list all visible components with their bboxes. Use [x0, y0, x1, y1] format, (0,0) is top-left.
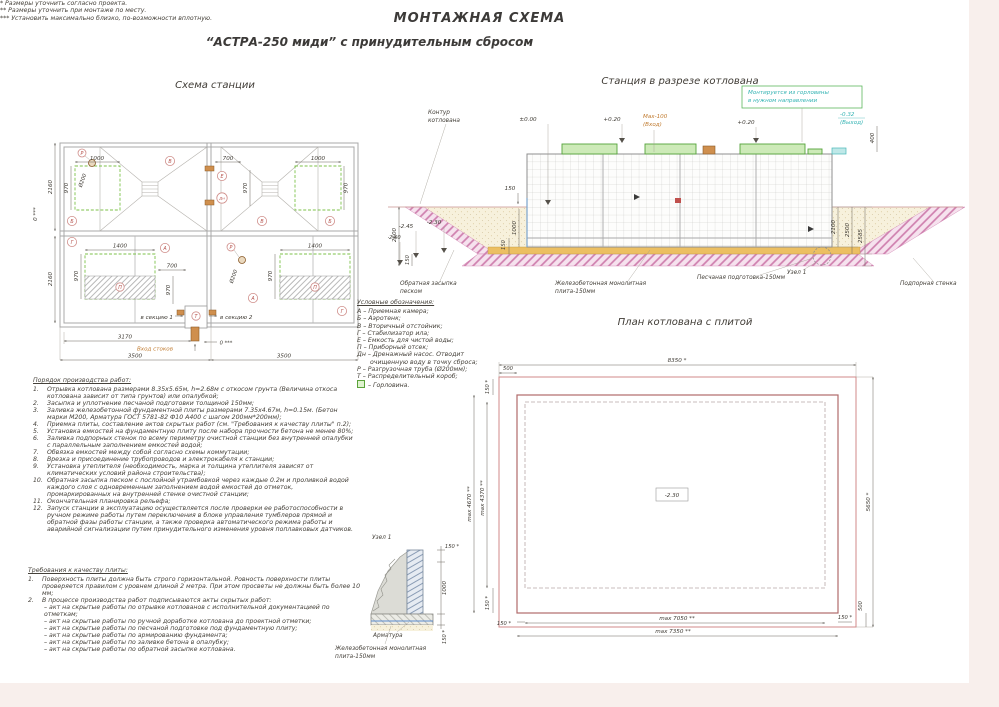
svg-text:-0.32: -0.32 [840, 112, 855, 118]
svg-text:2100: 2100 [831, 219, 837, 234]
to-section2-label: в секцию 2 [220, 315, 253, 321]
svg-text:Г: Г [341, 309, 344, 315]
svg-text:2500: 2500 [845, 222, 851, 237]
svg-text:max 4370 **: max 4370 ** [480, 480, 486, 516]
svg-text:песком: песком [400, 289, 423, 295]
svg-text:Р: Р [230, 245, 233, 251]
retaining-wall-section [407, 550, 423, 614]
page-subtitle: “АСТРА-250 миди” с принудительным сбросо… [0, 35, 739, 49]
pit-outlines [499, 377, 856, 627]
work-order-item: 8.Врезка и присоединение трубопроводов и… [33, 456, 358, 463]
svg-text:970: 970 [74, 270, 80, 281]
svg-text:Max-100: Max-100 [643, 114, 668, 120]
pit-plan-title: План котлована с плитой [560, 317, 810, 328]
svg-text:А: А [162, 246, 166, 252]
hidden-work-act: – акт на скрытые работы по армированию ф… [28, 632, 363, 639]
svg-text:1400: 1400 [113, 244, 128, 250]
svg-text:1000: 1000 [90, 156, 105, 162]
svg-text:-2.60: -2.60 [388, 235, 401, 241]
hidden-work-act: – акт на скрытые работы по отрывке котло… [28, 604, 363, 618]
svg-text:150: 150 [405, 254, 411, 265]
svg-text:150: 150 [501, 239, 507, 250]
hidden-work-act: – акт на скрытые работы по песчаной подг… [28, 625, 363, 632]
svg-text:970: 970 [344, 182, 350, 193]
legend-item-neck-label: – Горловина. [368, 382, 409, 389]
svg-text:500: 500 [503, 366, 514, 372]
svg-text:2585: 2585 [858, 228, 864, 243]
svg-text:-2.30: -2.30 [427, 220, 442, 226]
legend-item: Р – Разгрузочная труба (Ø200мм); [357, 366, 485, 373]
svg-text:В: В [260, 219, 263, 225]
node1-title: Узел 1 [372, 535, 391, 541]
svg-text:970: 970 [166, 284, 172, 295]
svg-text:Г: Г [71, 240, 74, 246]
level-mark [675, 198, 681, 203]
work-order-item: 7.Обвязка емкостей между собой согласно … [33, 449, 358, 456]
svg-text:Узел 1: Узел 1 [787, 270, 806, 276]
work-order-item: 5.Установка емкостей на фундаментную пли… [33, 428, 358, 435]
svg-text:970: 970 [268, 270, 274, 281]
hidden-work-act: – акт на скрытые работы по обратной засы… [28, 646, 363, 653]
svg-text:А: А [250, 296, 254, 302]
svg-text:(Вход): (Вход) [643, 122, 662, 128]
svg-text:3170: 3170 [118, 335, 133, 341]
svg-text:400: 400 [870, 132, 876, 143]
svg-text:Железобетонная монолитная: Железобетонная монолитная [554, 281, 647, 287]
drawing-sheet: МОНТАЖНАЯ СХЕМА “АСТРА-250 миди” с прину… [0, 0, 999, 707]
station-plan-drawing: Ø200 Ø200 1000 970 700 1000 970 970 1400… [25, 136, 380, 374]
work-order-item: 1.Отрывка котлована размерами 8.35х5.65м… [33, 386, 358, 400]
svg-text:150 *: 150 * [485, 596, 491, 611]
svg-text:3500: 3500 [277, 354, 292, 360]
svg-text:2160: 2160 [48, 271, 54, 286]
svg-text:max 7350 **: max 7350 ** [655, 629, 691, 635]
work-order-block: Порядок производства работ: 1.Отрывка ко… [33, 377, 358, 533]
hidden-work-act: – акт на скрытые работы по заливке бетон… [28, 639, 363, 646]
requirement-item: 1.Поверхность плиты должна быть строго г… [28, 576, 363, 597]
svg-text:Подпорная стенка: Подпорная стенка [900, 281, 957, 287]
node1-section [371, 550, 433, 631]
svg-text:max 7050 **: max 7050 ** [659, 616, 695, 622]
svg-text:±0.00: ±0.00 [519, 117, 537, 123]
work-order-item: 12.Запуск станции в эксплуатацию осущест… [33, 505, 358, 533]
work-order-item: 10.Обратная засыпка песком с послойной у… [33, 477, 358, 498]
svg-text:max 4670 **: max 4670 ** [467, 486, 473, 522]
neck-icon [357, 380, 365, 388]
svg-text:котлована: котлована [428, 118, 460, 124]
station-body [527, 154, 832, 247]
svg-text:Обратная засыпка: Обратная засыпка [400, 281, 457, 287]
svg-text:(Выход): (Выход) [840, 120, 863, 126]
svg-text:плита-150мм: плита-150мм [335, 654, 376, 660]
work-order-title: Порядок производства работ: [33, 377, 358, 384]
node1-dimensions: 150 * 1000 150 * [437, 544, 459, 644]
svg-text:150 *: 150 * [838, 615, 853, 621]
station-plan-title: Схема станции [125, 80, 305, 91]
work-order-item: 11.Окончательная планировка рельефа; [33, 498, 358, 505]
inlet-label: Вход стоков [137, 347, 173, 353]
depth-label: -2.30 [656, 488, 688, 501]
legend-item: Т – Распределительный короб; [357, 373, 485, 380]
footnote: * Размеры уточнить согласно проекта. [0, 0, 330, 7]
sheet-edge-bottom [0, 683, 999, 707]
svg-text:1000: 1000 [442, 580, 448, 595]
svg-text:970: 970 [243, 182, 249, 193]
svg-text:700: 700 [167, 264, 178, 270]
instrument-bays [85, 276, 350, 299]
svg-text:Монтируется из горловины: Монтируется из горловины [748, 90, 829, 96]
svg-text:В: В [168, 159, 171, 165]
svg-text:2160: 2160 [48, 179, 54, 194]
slab-section [371, 614, 433, 625]
work-order-item: 4.Приемка плиты, составление актов скрыт… [33, 421, 358, 428]
svg-text:в нужном направлении: в нужном направлении [748, 98, 817, 104]
svg-text:150 *: 150 * [497, 621, 512, 627]
svg-text:150: 150 [505, 186, 516, 192]
requirement-item: 2.В процессе производства работ подписыв… [28, 597, 363, 604]
svg-text:+0.20: +0.20 [603, 117, 621, 123]
svg-text:8350 *: 8350 * [668, 358, 687, 364]
svg-text:1000: 1000 [512, 220, 518, 235]
work-order-item: 9.Установка утеплителя (необходимость, м… [33, 463, 358, 477]
svg-text:П: П [313, 285, 317, 291]
svg-text:-2.30: -2.30 [665, 493, 680, 499]
page-title: МОНТАЖНАЯ СХЕМА [0, 11, 959, 26]
legend-item: Г – Стабилизатор ила; [357, 330, 485, 337]
svg-text:150 *: 150 * [442, 630, 448, 645]
svg-text:-2.45: -2.45 [399, 224, 414, 230]
pit-plan-drawing: -2.30 8350 * 500 150 * max 4670 ** max 4… [430, 332, 895, 654]
svg-text:700: 700 [223, 156, 234, 162]
riser-dia-label: Ø200 [77, 172, 89, 189]
hidden-work-act: – акт на скрытые работы по ручной дорабо… [28, 618, 363, 625]
riser-dia-label: Ø200 [228, 268, 240, 285]
outlet-pipe [832, 148, 846, 154]
svg-text:3500: 3500 [128, 354, 143, 360]
work-order-item: 6.Заливка подпорных стенок по всему пери… [33, 435, 358, 449]
tank-cone-envelopes [100, 147, 318, 231]
legend-item: Б – Аэротенк; [357, 315, 485, 322]
svg-text:5650 *: 5650 * [866, 492, 872, 511]
inlet-pipe [191, 327, 199, 341]
legend-title: Условные обозначения: [357, 299, 485, 306]
svg-text:0 ***: 0 *** [33, 207, 39, 221]
work-order-item: 2.Засыпка и уплотнение песчаной подготов… [33, 400, 358, 407]
svg-text:970: 970 [64, 182, 70, 193]
svg-text:Дн: Дн [218, 196, 225, 201]
svg-text:П: П [118, 285, 122, 291]
svg-text:500: 500 [858, 600, 864, 611]
svg-text:1000: 1000 [311, 156, 326, 162]
legend-item: В – Вторичный отстойник; [357, 323, 485, 330]
svg-text:150 *: 150 * [445, 544, 460, 550]
svg-text:Контур: Контур [428, 110, 450, 116]
legend-item-neck: – Горловина. [357, 380, 485, 389]
legend-item: П – Приборный отсек; [357, 344, 485, 351]
necks-and-lids [562, 144, 846, 154]
plate-requirements-title: Требования к качеству плиты: [28, 567, 363, 574]
plate-requirements-block: Требования к качеству плиты: 1.Поверхнос… [28, 567, 363, 653]
svg-text:Песчаная подготовка-150мм: Песчаная подготовка-150мм [697, 275, 786, 281]
legend-block: Условные обозначения: А – Приемная камер… [357, 299, 485, 389]
svg-text:0 ***: 0 *** [220, 341, 233, 347]
section-view-drawing: Монтируется из горловины в нужном направ… [388, 78, 995, 310]
svg-text:+0.20: +0.20 [737, 120, 755, 126]
svg-text:1400: 1400 [308, 244, 323, 250]
ladder [703, 146, 715, 154]
svg-text:плита-150мм: плита-150мм [555, 289, 596, 295]
to-section1-label: в секцию 1 [141, 315, 173, 321]
work-order-item: 3.Заливка железобетонной фундаментной пл… [33, 407, 358, 421]
svg-text:Р: Р [81, 151, 84, 157]
legend-item: Дн – Дренажный насос. Отводит очищенную … [357, 351, 485, 365]
legend-item: А – Приемная камера; [357, 308, 485, 315]
svg-text:150 *: 150 * [485, 380, 491, 395]
